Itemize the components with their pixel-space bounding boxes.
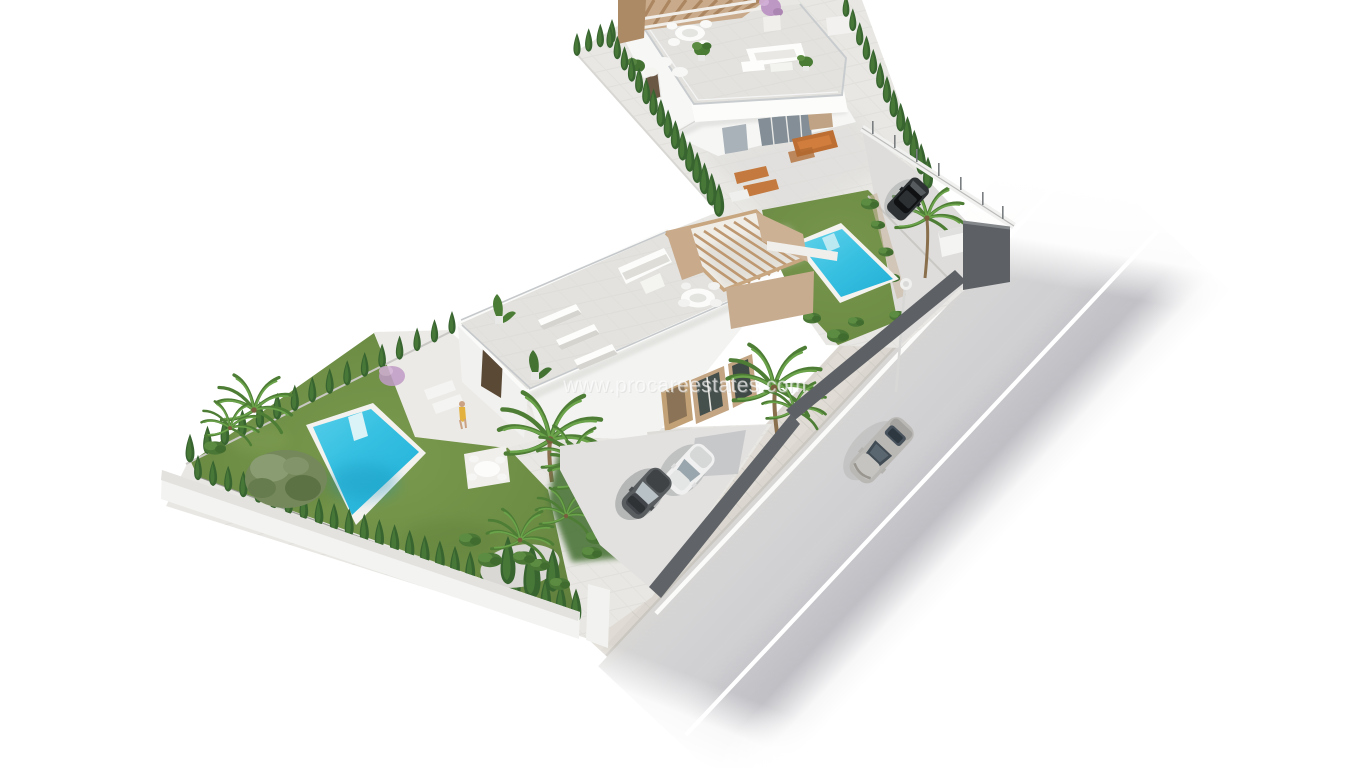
svg-text:www.procareestates.com: www.procareestates.com: [562, 374, 806, 397]
